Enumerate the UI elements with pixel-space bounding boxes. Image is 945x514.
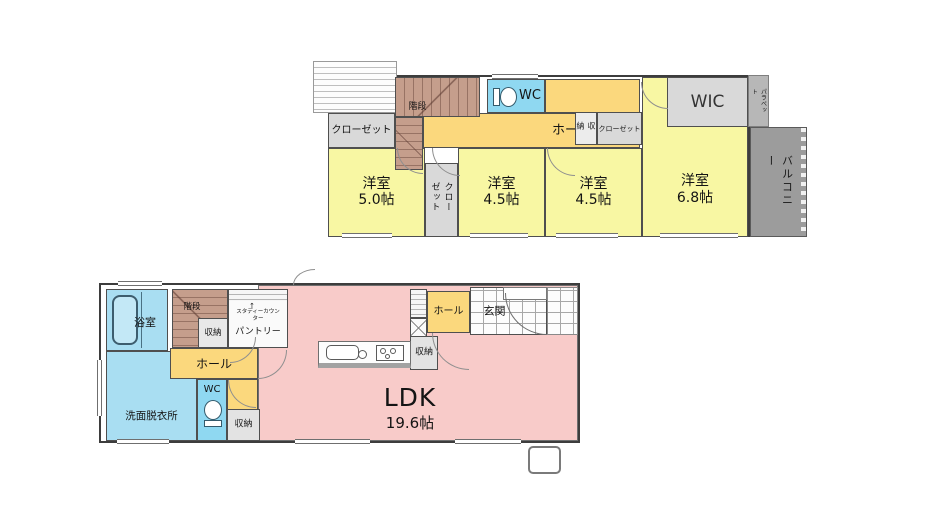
stairs-2f: 階段 xyxy=(395,77,480,117)
toilet-icon xyxy=(204,420,222,427)
closet-mid: クローゼット xyxy=(597,112,642,145)
sink-icon xyxy=(326,345,359,360)
closet-label: クローゼット xyxy=(429,182,455,218)
outside-step xyxy=(528,446,561,474)
parapet-label: パラペット xyxy=(750,89,768,114)
lower-roof-hatch xyxy=(313,61,397,113)
room-name: 洋室 xyxy=(681,173,709,189)
balcony: バルコニー xyxy=(750,127,807,237)
entrance-hall: ホール xyxy=(427,291,470,333)
window-marker xyxy=(470,233,528,238)
window-marker xyxy=(97,360,102,416)
stairs-label: 階段 xyxy=(165,302,219,312)
burner-icon xyxy=(390,348,396,354)
storage-label: 収納 xyxy=(199,328,227,338)
entrance-cabinet xyxy=(410,289,427,318)
burner-icon xyxy=(380,348,386,354)
wic-label: WIC xyxy=(668,92,747,112)
back-door-arc xyxy=(293,269,315,285)
closet-top-left: クローゼット xyxy=(328,113,395,148)
wc-1f: WC xyxy=(197,379,227,441)
room-name: 洋室 xyxy=(488,176,516,192)
toilet-icon xyxy=(204,400,222,420)
room-size: 4.5帖 xyxy=(575,193,611,209)
entrance-porch xyxy=(547,287,578,335)
window-marker xyxy=(118,281,162,286)
bathroom: 浴室 xyxy=(106,289,168,351)
storage-label: 収納 xyxy=(228,420,259,431)
toilet-icon xyxy=(493,88,500,106)
faucet-icon xyxy=(358,350,367,359)
study-counter-shelf xyxy=(229,290,287,301)
toilet-icon xyxy=(500,87,517,107)
room-label: 洋室 4.5帖 xyxy=(546,176,641,210)
room-label: 洋室 4.5帖 xyxy=(459,176,544,210)
room-name: 洋室 xyxy=(580,176,608,192)
wc-2f: WC xyxy=(487,79,545,113)
window-marker xyxy=(455,439,521,444)
parapet: パラペット xyxy=(748,75,769,127)
storage-by-stairs: 収納 xyxy=(198,318,228,348)
up-arrow-icon: ↑ xyxy=(223,302,281,310)
closet-label: クローゼット xyxy=(329,125,394,137)
room-size: 5.0帖 xyxy=(358,193,394,209)
stove-icon xyxy=(376,345,404,361)
closet-label: クローゼット xyxy=(598,124,641,132)
storage-by-wc: 収納 xyxy=(227,409,260,441)
balcony-edge xyxy=(801,128,806,236)
room-size: 6.8帖 xyxy=(677,190,713,206)
wic: WIC xyxy=(667,77,748,127)
hall-label: ホール xyxy=(428,306,469,318)
hall-2f-upper xyxy=(545,79,640,113)
cross-hatch-box xyxy=(410,318,427,338)
room-label: 洋室 5.0帖 xyxy=(329,176,424,210)
bath-divider xyxy=(141,292,142,348)
storage-label: 収納 xyxy=(411,348,437,359)
storage-label: 収納 xyxy=(575,121,597,137)
room-youshitsu-4-5-a: 洋室 4.5帖 xyxy=(458,148,545,237)
window-marker xyxy=(117,439,169,444)
window-marker xyxy=(556,233,618,238)
room-name: 洋室 xyxy=(363,176,391,192)
wc-label: WC xyxy=(198,384,226,396)
window-marker xyxy=(295,439,370,444)
bathtub-icon xyxy=(112,295,138,345)
study-counter-label: スタディーカウンター xyxy=(235,309,281,323)
room-label: 洋室 6.8帖 xyxy=(643,173,747,207)
floor-plan-canvas: 洋室 6.8帖 クローゼット 洋室 5.0帖 洋室 4.5帖 洋室 4.5帖 ク… xyxy=(0,0,945,514)
window-marker xyxy=(660,233,738,238)
balcony-label: バルコニー xyxy=(763,155,795,209)
washroom-label: 洗面脱衣所 xyxy=(107,410,196,423)
window-marker xyxy=(492,74,538,79)
burner-icon xyxy=(385,354,390,359)
storage-2f: 収納 xyxy=(575,112,597,145)
kitchen-counter xyxy=(318,341,411,368)
room-size: 4.5帖 xyxy=(483,193,519,209)
window-marker xyxy=(342,233,392,238)
